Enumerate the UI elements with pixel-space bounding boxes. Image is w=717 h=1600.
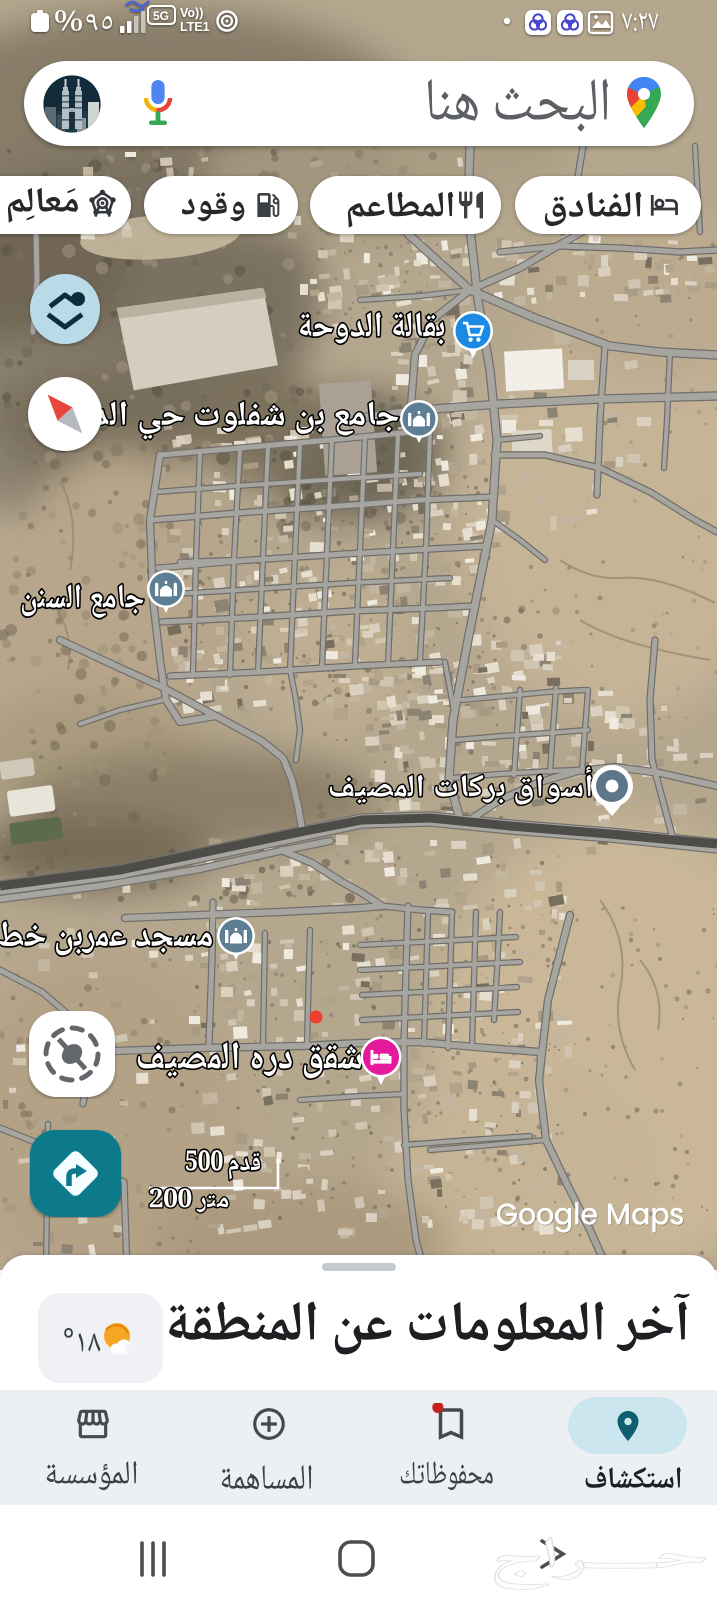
svg-text:5G: 5G bbox=[153, 9, 169, 23]
svg-text:Vo)): Vo)) bbox=[180, 6, 203, 20]
svg-text:LTE1: LTE1 bbox=[180, 20, 210, 34]
